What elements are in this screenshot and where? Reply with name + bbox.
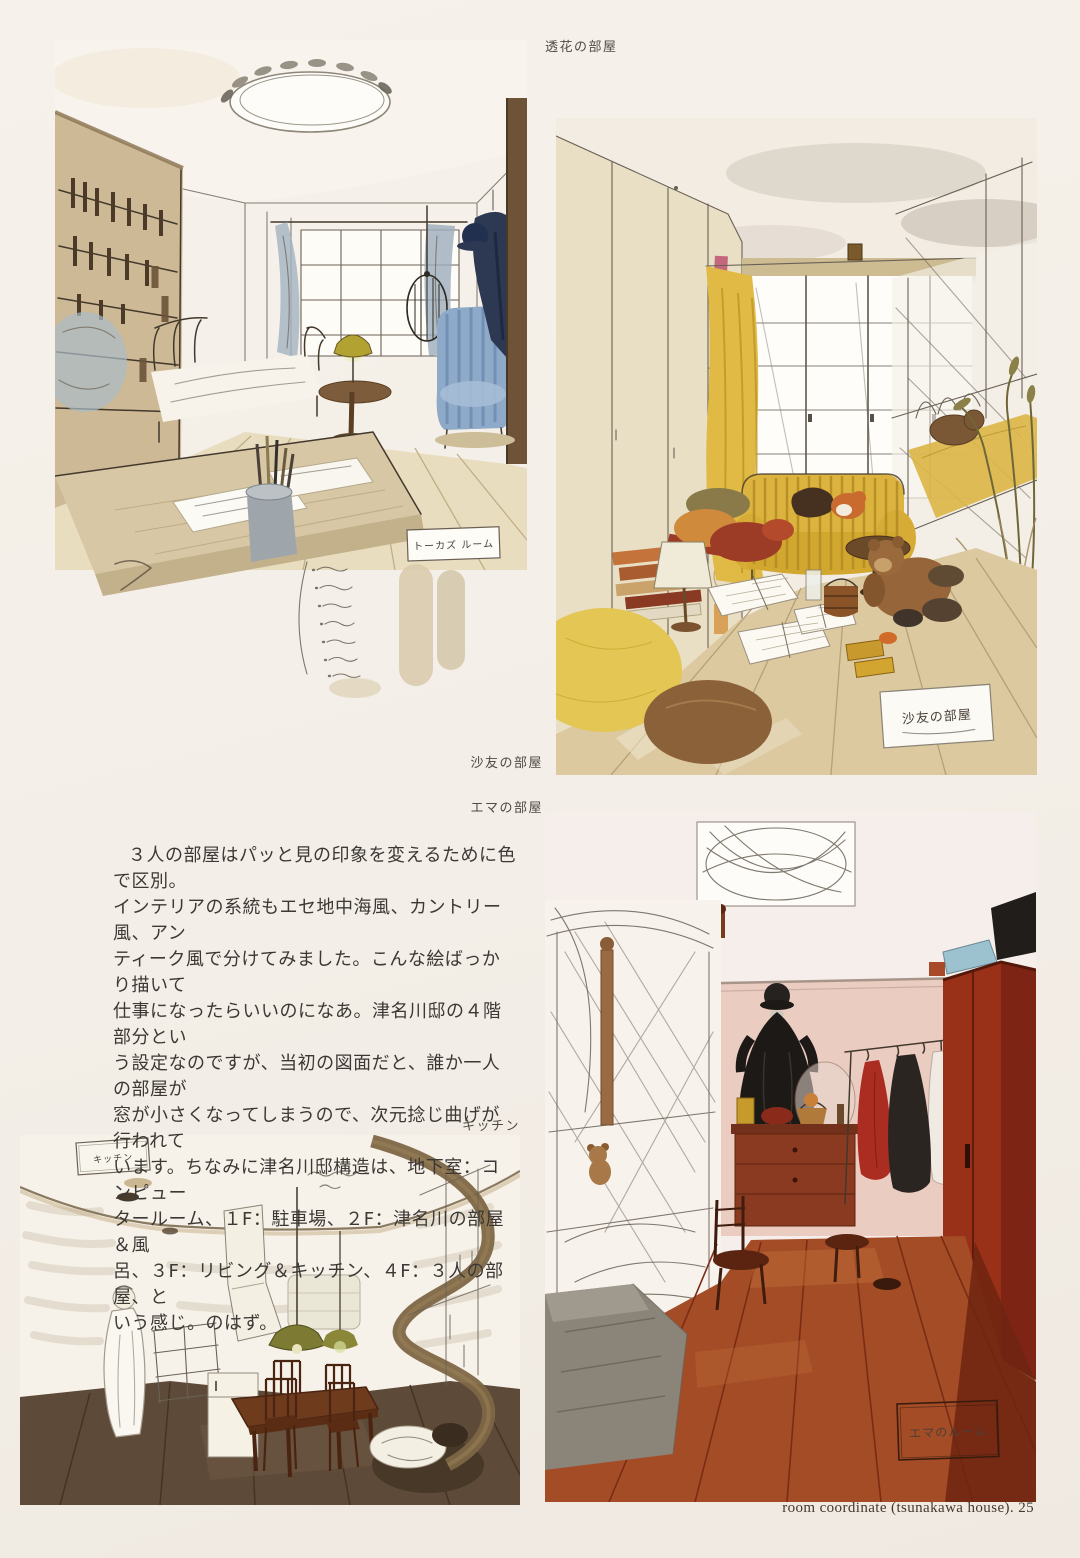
label-touka-room: 透花の部屋 <box>545 36 618 55</box>
ceiling-light-sketch <box>697 822 855 906</box>
commentary-paragraph: ３人の部屋はパッと見の印象を変えるために色で区別。インテリアの系統もエセ地中海風… <box>113 843 517 1337</box>
door-frame <box>507 98 527 464</box>
page-footer: room coordinate (tsunakawa house). 25 <box>782 1500 1034 1517</box>
label-sayu-room: 沙友の部屋 <box>470 752 543 771</box>
sayu-room-illustration: 沙友の部屋 <box>556 118 1037 775</box>
dark-cat <box>791 487 833 517</box>
sayu-room-sign: 沙友の部屋 <box>880 684 994 748</box>
handwritten-notes-list <box>299 562 360 678</box>
svg-text:エマのルーム: エマのルーム <box>909 1424 987 1441</box>
emma-room-illustration: エマのルーム <box>545 812 1036 1502</box>
touka-room-illustration: トーカズ ルーム <box>55 40 527 700</box>
bookshelf <box>55 112 183 508</box>
label-emma-room: エマの部屋 <box>470 797 543 816</box>
touka-room-sign: トーカズ ルーム <box>407 527 500 561</box>
book-page: トーカズ ルーム <box>0 0 1080 1558</box>
